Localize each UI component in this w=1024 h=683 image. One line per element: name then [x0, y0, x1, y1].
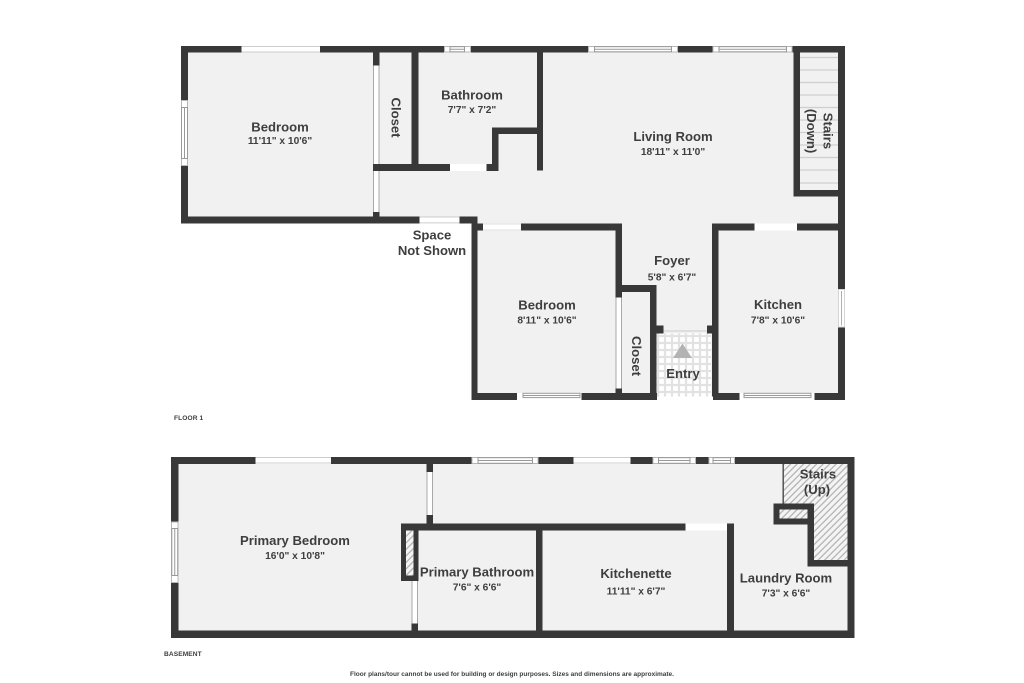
svg-text:Foyer: Foyer [654, 253, 690, 268]
svg-text:Space: Space [413, 228, 452, 243]
svg-text:(Up): (Up) [804, 482, 830, 497]
svg-text:7'6" x 6'6": 7'6" x 6'6" [453, 583, 502, 594]
svg-text:Primary Bedroom: Primary Bedroom [240, 533, 350, 548]
svg-text:16'0" x 10'8": 16'0" x 10'8" [265, 551, 325, 562]
svg-text:Stairs: Stairs [800, 467, 836, 482]
svg-text:8'11" x 10'6": 8'11" x 10'6" [517, 316, 576, 327]
svg-text:Closet: Closet [388, 97, 403, 138]
svg-text:11'11" x 6'7": 11'11" x 6'7" [607, 587, 666, 598]
svg-text:7'3" x 6'6": 7'3" x 6'6" [762, 589, 811, 600]
svg-text:7'7" x 7'2": 7'7" x 7'2" [448, 105, 497, 116]
svg-text:Stairs: Stairs [821, 113, 836, 149]
svg-text:7'8" x 10'6": 7'8" x 10'6" [751, 316, 805, 327]
svg-text:Bedroom: Bedroom [518, 298, 575, 313]
svg-text:FLOOR 1: FLOOR 1 [174, 415, 204, 422]
svg-text:Kitchen: Kitchen [754, 297, 802, 312]
svg-text:Bedroom: Bedroom [251, 120, 308, 135]
svg-text:18'11" x 11'0": 18'11" x 11'0" [641, 147, 706, 158]
svg-text:Bathroom: Bathroom [441, 88, 503, 103]
svg-text:Primary Bathroom: Primary Bathroom [420, 565, 534, 580]
svg-text:Living Room: Living Room [633, 129, 712, 144]
svg-text:5'8" x 6'7": 5'8" x 6'7" [648, 273, 697, 284]
svg-text:Kitchenette: Kitchenette [600, 566, 671, 581]
svg-text:11'11" x 10'6": 11'11" x 10'6" [248, 136, 313, 147]
svg-text:Entry: Entry [666, 366, 700, 381]
svg-text:BASEMENT: BASEMENT [164, 651, 202, 658]
svg-text:(Down): (Down) [804, 109, 819, 153]
svg-text:Laundry Room: Laundry Room [740, 571, 832, 586]
svg-text:Floor plans/tour cannot be use: Floor plans/tour cannot be used for buil… [350, 671, 674, 678]
svg-text:Closet: Closet [629, 336, 644, 377]
svg-text:Not Shown: Not Shown [398, 243, 466, 258]
